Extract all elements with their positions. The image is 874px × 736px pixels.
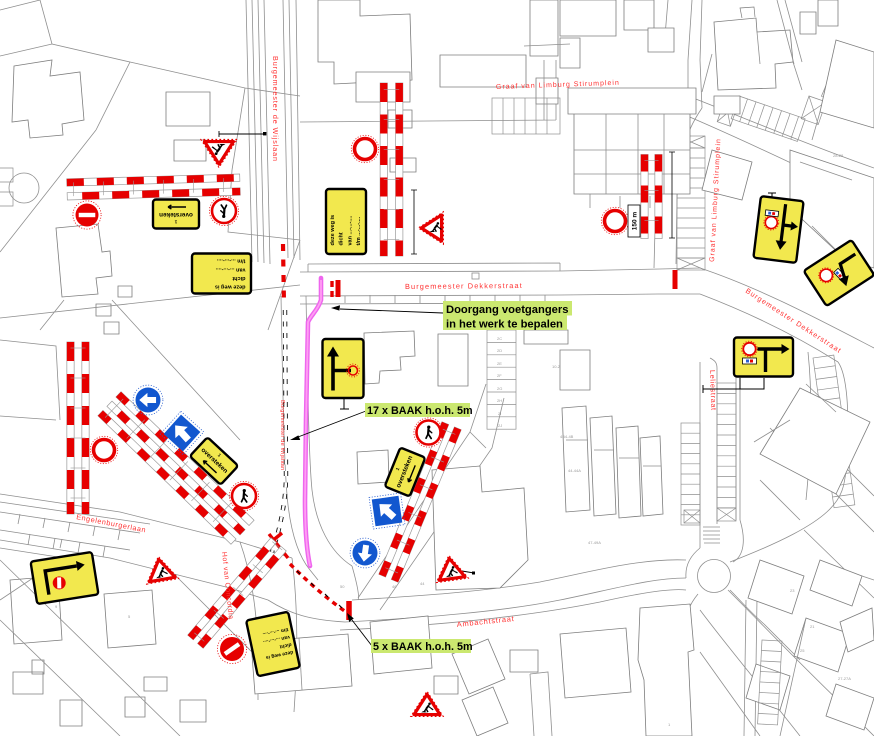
svg-text:deze weg is: deze weg is [330,215,336,246]
svg-text:150 m: 150 m [632,212,639,231]
svg-text:46: 46 [392,584,397,589]
svg-text:25: 25 [800,648,805,653]
svg-text:5 x BAAK h.o.h. 5m: 5 x BAAK h.o.h. 5m [373,641,473,653]
svg-text:2D: 2D [497,348,502,353]
svg-text:47-49A: 47-49A [588,540,601,545]
svg-text:21: 21 [810,624,815,629]
svg-text:4B4-4B: 4B4-4B [560,434,574,439]
svg-text:50: 50 [340,584,345,589]
svg-text:van ...-...-....: van ...-...-.... [347,215,353,245]
svg-text:2H: 2H [497,398,502,403]
svg-text:t/m ...-...-....: t/m ...-...-.... [216,258,245,264]
svg-text:dicht: dicht [339,232,345,245]
svg-text:2E: 2E [497,361,502,366]
svg-text:Burgemeester Dekkerstraat: Burgemeester Dekkerstraat [405,281,523,291]
svg-text:28-28: 28-28 [833,153,844,158]
svg-text:44-44A: 44-44A [568,468,581,473]
svg-text:oversteken: oversteken [159,211,193,218]
svg-text:2G: 2G [497,386,502,391]
svg-text:Leliestraat: Leliestraat [708,370,718,411]
svg-text:deze weg is: deze weg is [215,283,246,289]
svg-text:2C: 2C [497,336,502,341]
svg-text:in het werk te bepalen: in het werk te bepalen [446,319,563,331]
svg-text:2I: 2I [498,411,501,416]
svg-text:2J: 2J [498,423,502,428]
svg-text:2F: 2F [497,373,502,378]
svg-text:44: 44 [420,581,425,586]
svg-text:27-27A: 27-27A [838,676,851,681]
svg-text:Burgemeester de Wijslaan: Burgemeester de Wijslaan [271,56,280,162]
svg-text:t/m ...-...-....: t/m ...-...-.... [356,216,362,245]
svg-text:van ...-...-....: van ...-...-.... [215,266,245,272]
svg-text:Doorgang voetgangers: Doorgang voetgangers [446,304,568,316]
svg-text:17 x BAAK h.o.h. 5m: 17 x BAAK h.o.h. 5m [367,405,473,417]
svg-text:23: 23 [790,588,795,593]
svg-text:dicht: dicht [232,275,245,281]
svg-text:Burgemeester de Wijslaan: Burgemeester de Wijslaan [279,400,285,470]
